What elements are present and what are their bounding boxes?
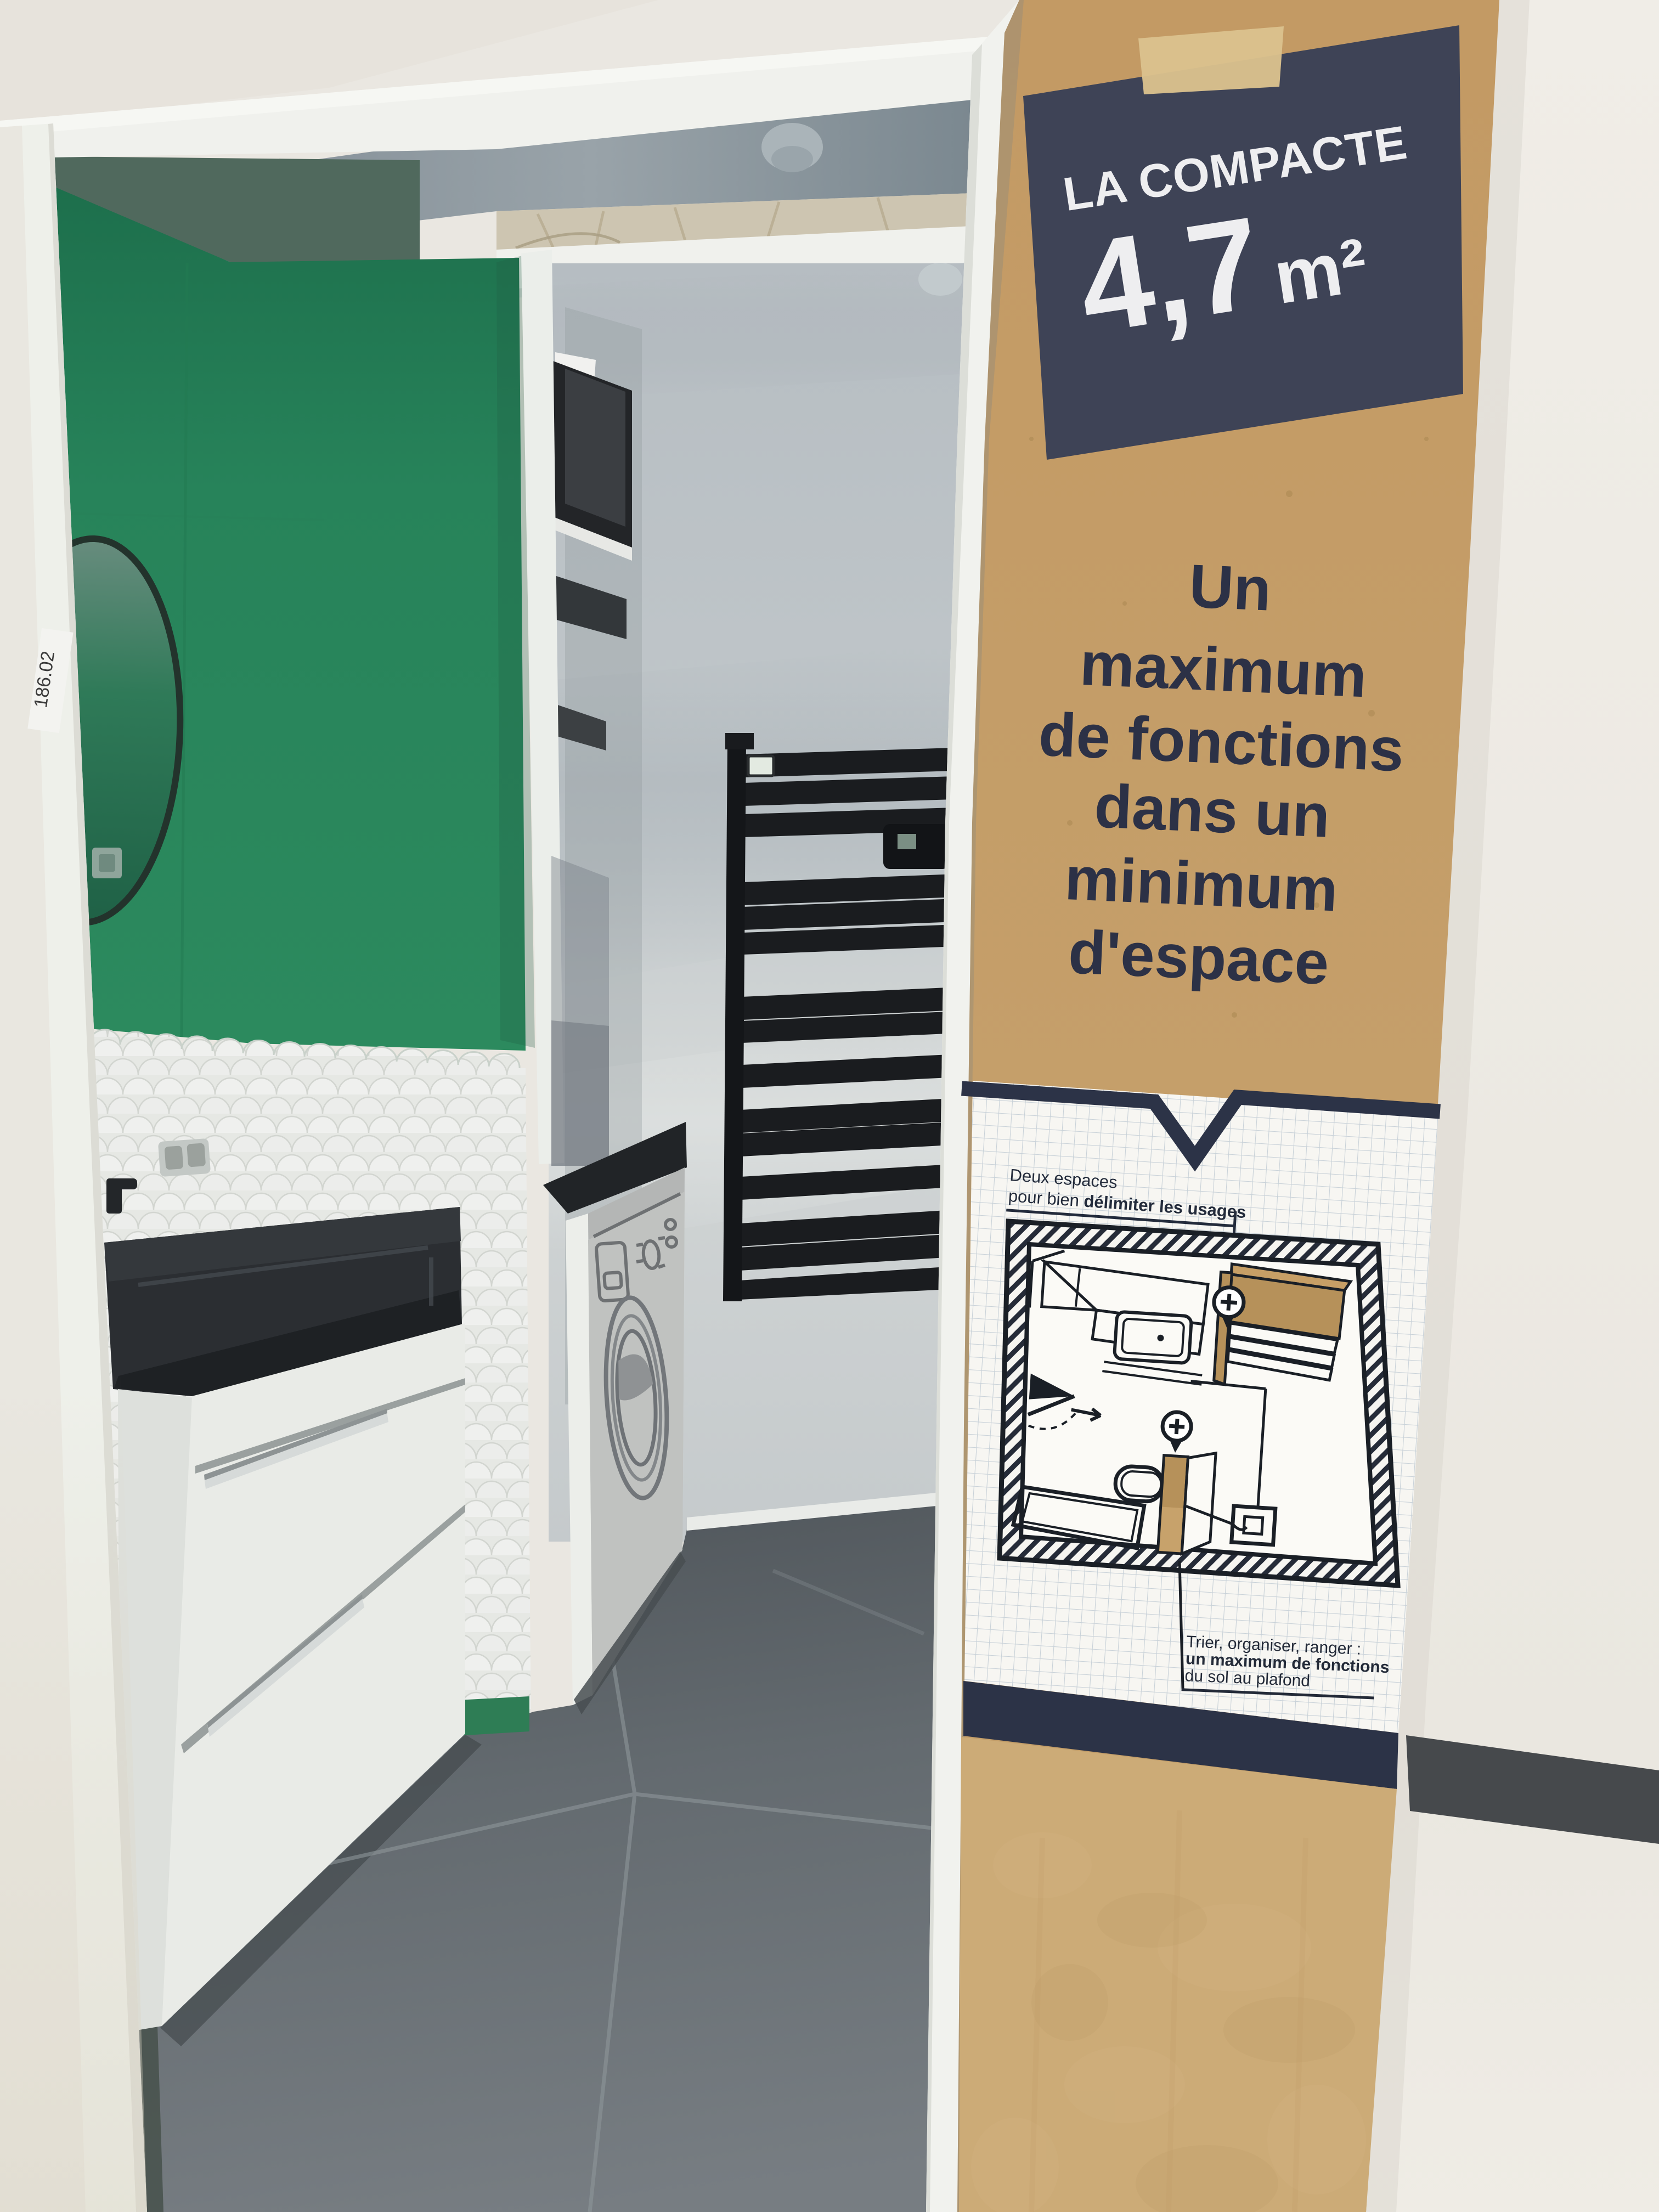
svg-text:d'espace: d'espace [1067,917,1330,997]
svg-text:Un: Un [1188,551,1273,623]
svg-text:minimum: minimum [1063,844,1339,924]
svg-text:dans un: dans un [1093,771,1331,850]
svg-text:maximum: maximum [1079,629,1368,710]
